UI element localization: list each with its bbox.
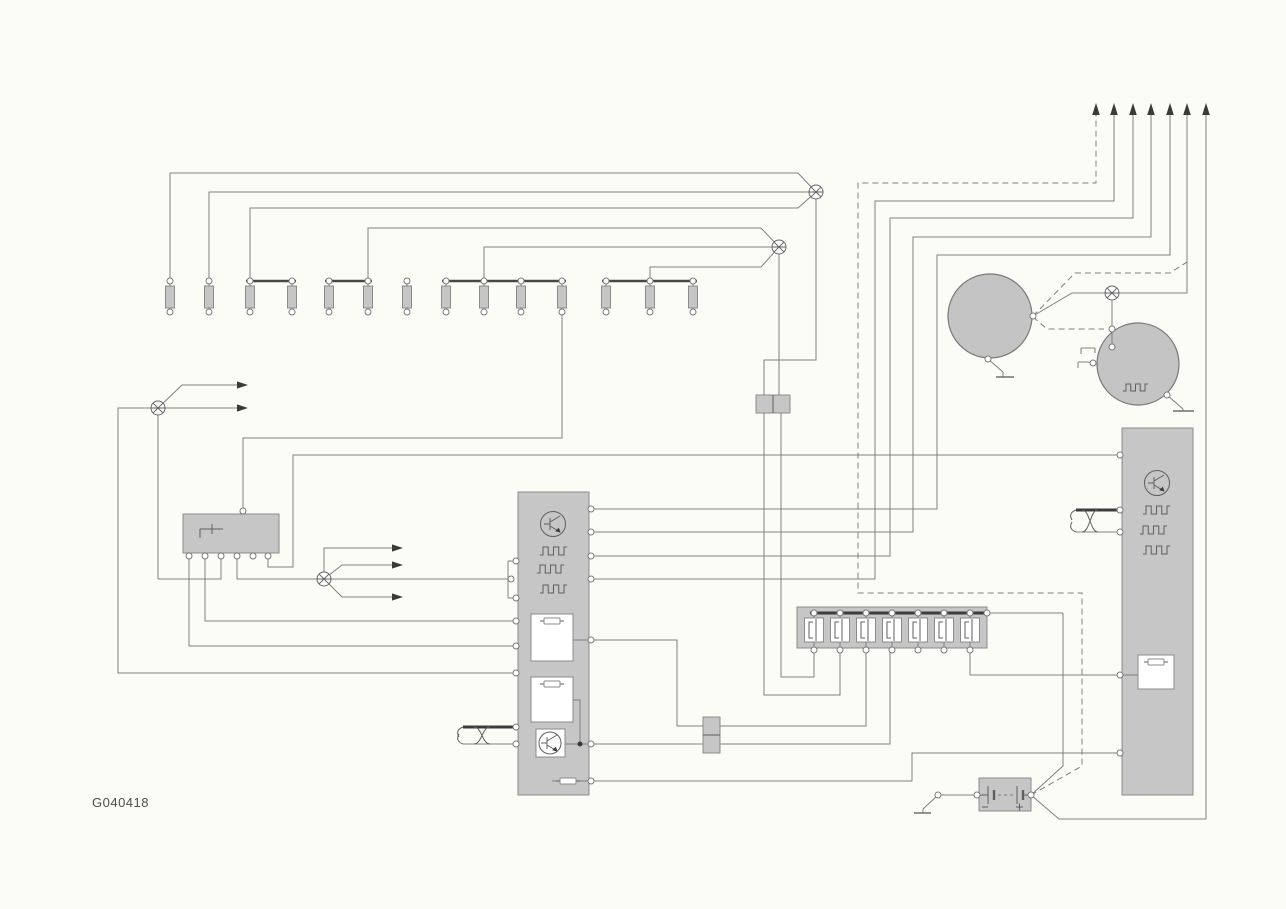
terminal [167,278,173,284]
arrow-up-icon [1147,103,1155,115]
element-body [646,286,655,308]
wire [243,312,562,511]
terminal [1117,507,1123,513]
terminal [935,792,941,798]
arrows-layer [237,103,1210,601]
fuse-icon [544,681,560,687]
wire [923,797,936,809]
arrow-up-icon [1202,103,1210,115]
terminal [326,278,332,284]
terminal [326,309,332,315]
dashed-wire [1033,317,1104,329]
terminal [518,278,524,284]
terminal [289,309,295,315]
wire [592,114,1133,556]
terminal [234,553,240,559]
element-body [205,286,214,308]
element-body [517,286,526,308]
wire [720,650,866,726]
terminal [941,610,947,616]
wire [592,640,703,726]
terminal [508,576,514,582]
junction-dot [578,742,583,747]
fuse-box [909,618,928,642]
terminal [588,553,594,559]
arrow-right-icon [237,404,248,411]
arrow-right-icon [237,381,248,388]
wire [209,192,816,281]
wire [170,173,816,281]
terminal [889,610,895,616]
element-body [166,286,175,308]
terminal [974,792,980,798]
terminal [513,724,519,730]
wire [324,548,397,579]
wire [205,556,514,621]
wire [484,247,779,281]
terminal [513,741,519,747]
terminal [647,309,653,315]
wire [970,650,1117,675]
element-body [442,286,451,308]
terminal [289,278,295,284]
arrow-right-icon [392,593,403,600]
terminal [365,309,371,315]
terminal [559,309,565,315]
wire [592,114,1151,532]
terminal [588,741,594,747]
terminal [518,309,524,315]
wiring-diagram-page: G040418 [0,0,1286,909]
element-body [288,286,297,308]
terminal [603,278,609,284]
terminal [265,553,271,559]
element-body [246,286,255,308]
terminal [206,309,212,315]
element-body [403,286,412,308]
terminal [206,278,212,284]
terminal [481,278,487,284]
terminal [889,647,895,653]
terminal [837,610,843,616]
terminals-layer [151,185,1170,798]
element-body [602,286,611,308]
terminal [247,278,253,284]
wire [189,556,514,646]
figure-code-label: G040418 [92,795,149,810]
element-body [689,286,698,308]
terminal [985,356,991,362]
component-boxes-layer [183,274,1193,811]
terminal [404,309,410,315]
element-body [480,286,489,308]
terminal [1030,313,1036,319]
terminal [218,553,224,559]
terminal [513,558,519,564]
terminal [250,553,256,559]
wiring-diagram-canvas: G040418 [0,0,1286,909]
fuse-box [961,618,980,642]
wire [368,228,779,281]
terminal [365,278,371,284]
terminal [690,278,696,284]
terminal [588,637,594,643]
fuse-icon [544,618,560,624]
terminal [647,278,653,284]
fuse-box [805,618,824,642]
arrow-up-icon [1183,103,1191,115]
wire [324,579,397,597]
twisted-pair-icon [474,727,490,744]
terminal [811,610,817,616]
terminal [863,647,869,653]
terminal [1109,344,1115,350]
wire [1033,114,1187,316]
terminal [513,643,519,649]
terminal [941,647,947,653]
terminal [588,506,594,512]
arrow-right-icon [392,561,403,568]
fuse-box [935,618,954,642]
wires-layer [118,114,1206,819]
wire [764,192,816,395]
terminal [559,278,565,284]
terminal [1090,360,1096,366]
wire [592,753,1117,781]
terminal [1117,750,1123,756]
arrow-up-icon [1129,103,1137,115]
terminal [1028,792,1034,798]
terminal [915,647,921,653]
terminal [202,553,208,559]
generator-circle [948,274,1032,358]
twisted-pair-icon [458,734,463,744]
terminal [1117,672,1123,678]
terminal [513,618,519,624]
wire [118,408,514,673]
terminal [247,309,253,315]
element-body [558,286,567,308]
terminal [967,647,973,653]
fuse-box [831,618,850,642]
fuse-box [883,618,902,642]
terminal [240,508,246,514]
terminal [863,610,869,616]
terminal [967,610,973,616]
terminal [837,647,843,653]
terminal [984,610,990,616]
wire [650,247,779,281]
terminal [513,670,519,676]
terminal [443,278,449,284]
twisted-pair-icon [1082,510,1098,532]
arrow-up-icon [1092,103,1100,115]
terminal [404,278,410,284]
wire [1031,613,1063,795]
terminal [1164,392,1170,398]
fuse-icon [560,778,576,784]
terminal [588,529,594,535]
twisted-pair-icon [1071,510,1076,520]
arrow-up-icon [1110,103,1118,115]
twisted-pair-icon [1071,522,1076,532]
terminal [481,309,487,315]
element-body [325,286,334,308]
wire [250,192,816,281]
terminal [1117,452,1123,458]
terminal [588,576,594,582]
terminal [1109,326,1115,332]
fuse-box [857,618,876,642]
terminal [513,595,519,601]
terminal [811,647,817,653]
relay-box [183,514,279,553]
terminal [167,309,173,315]
right-module-box [1122,428,1193,795]
terminal [186,553,192,559]
terminal [1117,529,1123,535]
symbol-glyphs-layer [166,286,1195,813]
terminal [915,610,921,616]
element-body [364,286,373,308]
wire [324,565,397,579]
fuse-icon [1148,659,1164,665]
arrow-up-icon [1166,103,1174,115]
terminal [603,309,609,315]
wire [720,650,890,744]
arrow-right-icon [392,544,403,551]
terminal [443,309,449,315]
terminal [690,309,696,315]
terminal [588,778,594,784]
wire [158,385,242,408]
